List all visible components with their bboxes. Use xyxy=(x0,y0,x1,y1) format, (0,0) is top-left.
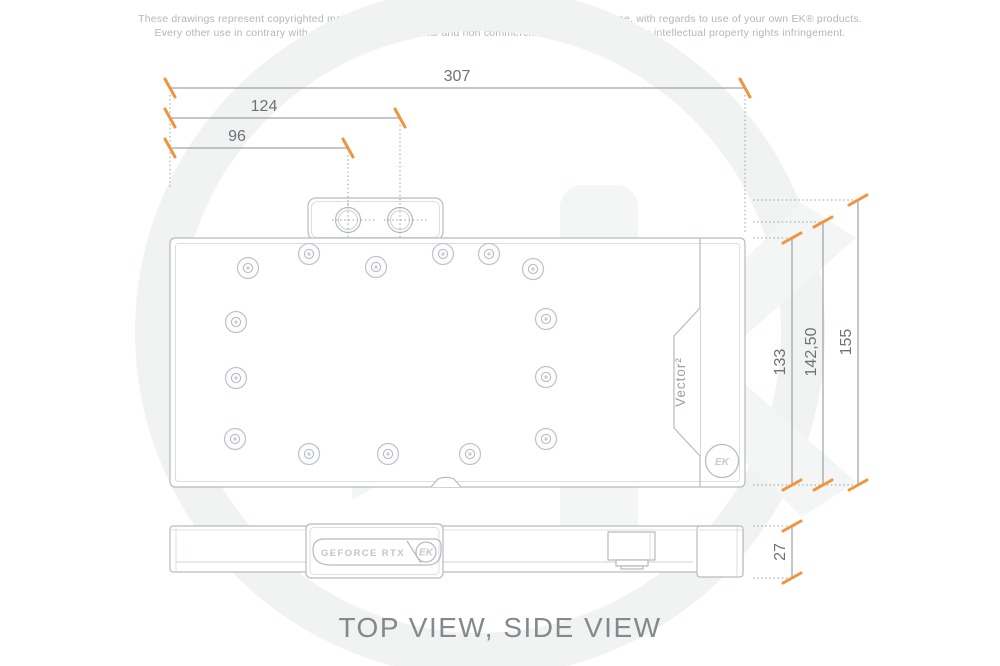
badge-ek-icon: EK xyxy=(419,548,434,559)
side-terminal-cover: EK GEFORCE RTX xyxy=(306,524,443,578)
screw-hole xyxy=(536,309,557,330)
screw-hole xyxy=(536,429,557,450)
drawing-title: TOP VIEW, SIDE VIEW xyxy=(0,612,1000,644)
ek-badge-icon: EK xyxy=(715,457,730,468)
screw-hole xyxy=(299,244,320,265)
slot-foot-step xyxy=(621,566,643,569)
product-name-label: Vector² xyxy=(673,357,688,407)
side-view: EK GEFORCE RTX xyxy=(170,524,743,578)
screw-hole xyxy=(366,257,387,278)
dim-port1-offset-label: 96 xyxy=(228,128,246,145)
screw-hole xyxy=(378,444,399,465)
terminal-block xyxy=(308,198,443,241)
slot-outline xyxy=(608,532,655,560)
screw-hole xyxy=(433,244,454,265)
dim-port-axis-height-label: 142,50 xyxy=(803,327,820,376)
dim-total-height-label: 155 xyxy=(838,329,855,356)
screw-hole xyxy=(238,258,259,279)
dim-thickness-label: 27 xyxy=(772,543,789,561)
dim-block-height-label: 133 xyxy=(772,349,789,376)
terminal-outline xyxy=(308,198,443,240)
screw-hole xyxy=(226,368,247,389)
screw-hole xyxy=(460,444,481,465)
dim-port2-offset-label: 124 xyxy=(251,98,278,115)
geforce-rtx-label: GEFORCE RTX xyxy=(321,548,405,559)
technical-drawing-canvas: Vector² EK EK GEFORCE RTX xyxy=(0,0,1000,666)
slot-foot xyxy=(616,560,648,566)
screw-hole xyxy=(479,244,500,265)
top-view: Vector² EK xyxy=(170,198,745,487)
screw-hole xyxy=(299,444,320,465)
side-right-cap xyxy=(697,526,743,577)
dim-thickness: 27 xyxy=(772,521,801,583)
screw-hole xyxy=(226,312,247,333)
water-block-body: Vector² EK xyxy=(170,238,745,487)
screw-hole xyxy=(523,259,544,280)
screw-hole xyxy=(225,429,246,450)
screw-hole xyxy=(536,367,557,388)
dim-total-length-label: 307 xyxy=(444,68,471,85)
side-body-outline xyxy=(170,526,743,572)
